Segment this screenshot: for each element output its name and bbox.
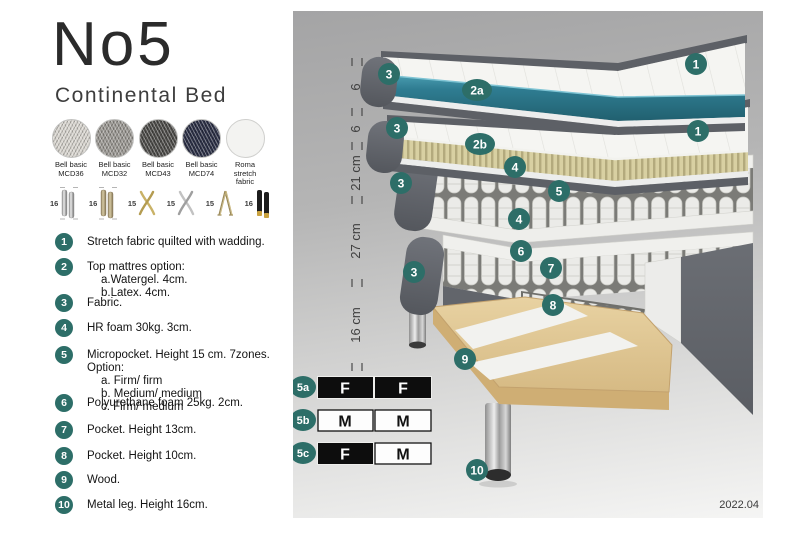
leg-option: 15 [167, 186, 196, 220]
bed-cutaway-diagram: 6 6 21 cm 27 cm 16 cm [293, 11, 763, 518]
list-item-sub-text: a. Firm/ firm [101, 375, 302, 388]
leg-option: 16 [89, 186, 118, 220]
callout-5: 5 [548, 180, 570, 202]
callout-10: 10 [466, 459, 488, 481]
list-item-main-text: Top mattres option: [87, 261, 302, 274]
callout-text: 2b [473, 138, 487, 152]
callout-text: 4 [516, 213, 523, 227]
callout-text: 3 [398, 177, 405, 191]
list-item-text: HR foam 30kg. 3cm. [87, 319, 302, 337]
list-item-7: 7 Pocket. Height 13cm. [55, 421, 302, 439]
list-item-text: Fabric. [87, 294, 302, 312]
ruler-label: 6 [348, 125, 363, 132]
callout-text: 3 [411, 266, 418, 280]
box-outer-fabric-right [681, 243, 753, 415]
callout-text: 3 [386, 68, 393, 82]
bed-diagram-panel: 6 6 21 cm 27 cm 16 cm [293, 11, 763, 518]
list-item-text: Stretch fabric quilted with wadding. [87, 233, 302, 251]
box-base [398, 232, 753, 488]
callout-4: 4 [504, 156, 526, 178]
list-number-badge: 8 [55, 447, 73, 465]
list-item-8: 8 Pocket. Height 10cm. [55, 447, 302, 465]
ruler-label: 16 cm [348, 307, 363, 342]
fabric-swatch-label: Bell basic MCD32 [94, 161, 136, 178]
leg-height-label: 15 [206, 199, 214, 208]
callout-9: 9 [454, 348, 476, 370]
fabric-swatch-image [226, 119, 265, 158]
fabric-swatch: Bell basic MCD74 [181, 119, 223, 187]
callout-2b: 2b [465, 133, 495, 155]
fabric-swatch-label: Bell basic MCD74 [181, 161, 223, 178]
list-item-3: 3 Fabric. [55, 294, 302, 312]
cross-gold-leg-icon [137, 186, 157, 220]
callout-1: 1 [685, 53, 707, 75]
cross-silver-leg-icon [176, 186, 196, 220]
cylinder-brass-leg-icon [98, 186, 118, 220]
firmness-cell-text: F [398, 381, 408, 398]
firmness-cell-text: M [396, 447, 409, 464]
page-title: No5 [52, 14, 175, 76]
leg-option: 15 [128, 186, 157, 220]
callout-text: 4 [512, 161, 519, 175]
firmness-cell-text: F [340, 381, 350, 398]
leg-height-label: 15 [128, 199, 136, 208]
callout-3: 3 [403, 261, 425, 283]
fabric-swatch-label: Roma stretch fabric [224, 161, 266, 187]
list-number-badge: 4 [55, 319, 73, 337]
list-number-badge: 2 [55, 258, 73, 276]
fabric-swatch-row: Bell basic MCD36 Bell basic MCD32 Bell b… [50, 119, 266, 187]
ruler-label: 27 cm [348, 223, 363, 258]
callout-6: 6 [510, 240, 532, 262]
list-item-10: 10 Metal leg. Height 16cm. [55, 496, 302, 514]
list-number-badge: 6 [55, 394, 73, 412]
list-number-badge: 7 [55, 421, 73, 439]
fabric-swatch-image [95, 119, 134, 158]
callout-text: 1 [695, 125, 702, 139]
list-item-text: Pocket. Height 13cm. [87, 421, 302, 439]
leg-height-label: 16 [89, 199, 97, 208]
firmness-cell-text: F [340, 447, 350, 464]
list-item-9: 9 Wood. [55, 471, 302, 489]
firmness-row-label: 5c [297, 448, 309, 460]
callout-text: 9 [462, 353, 469, 367]
callout-text: 2a [470, 84, 484, 98]
list-item-1: 1 Stretch fabric quilted with wadding. [55, 233, 302, 251]
list-number-badge: 9 [55, 471, 73, 489]
front-metal-leg [485, 403, 511, 477]
fabric-swatch: Bell basic MCD32 [94, 119, 136, 187]
rear-leg-foot [409, 342, 426, 349]
list-item-text: Wood. [87, 471, 302, 489]
callout-4: 4 [508, 208, 530, 230]
list-item-4: 4 HR foam 30kg. 3cm. [55, 319, 302, 337]
list-item-text: Polyurethane foam 25kg. 2cm. [87, 394, 302, 412]
leg-options-row: 16 16 15 15 [50, 186, 274, 220]
fabric-swatch-image [52, 119, 91, 158]
callout-3: 3 [378, 63, 400, 85]
leg-option: 16 [50, 186, 79, 220]
list-item-text: Metal leg. Height 16cm. [87, 496, 302, 514]
leg-option: 16 [245, 186, 274, 220]
callout-8: 8 [542, 294, 564, 316]
firmness-cell-text: M [338, 414, 351, 431]
front-leg-foot [485, 469, 511, 481]
firmness-row-label: 5a [297, 382, 310, 394]
callout-text: 8 [550, 299, 557, 313]
leg-height-label: 16 [245, 199, 253, 208]
callout-text: 3 [394, 122, 401, 136]
fabric-swatch: Bell basic MCD43 [137, 119, 179, 187]
firmness-cell-text: M [396, 414, 409, 431]
fabric-swatch-label: Bell basic MCD36 [50, 161, 92, 178]
callout-7: 7 [540, 257, 562, 279]
measurement-labels: 6 6 21 cm 27 cm 16 cm [348, 83, 363, 342]
callout-text: 10 [470, 464, 484, 478]
callout-text: 7 [548, 262, 555, 276]
list-item-text: Pocket. Height 10cm. [87, 447, 302, 465]
leg-option: 15 [206, 186, 235, 220]
leg-shadow [479, 481, 517, 488]
version-label: 2022.04 [719, 499, 759, 511]
cylinder-silver-leg-icon [59, 186, 79, 220]
list-number-badge: 3 [55, 294, 73, 312]
callout-2a: 2a [462, 79, 492, 101]
hairpin-leg-icon [215, 186, 235, 220]
firmness-row-label: 5b [297, 415, 310, 427]
leg-height-label: 15 [167, 199, 175, 208]
list-item-sub-text: a.Watergel. 4cm. [101, 274, 302, 287]
list-number-badge: 5 [55, 346, 73, 364]
product-sheet: No5 Continental Bed Bell basic MCD36 Bel… [0, 0, 800, 533]
cylinder-black-gold-leg-icon [254, 186, 274, 220]
fabric-swatch-image [139, 119, 178, 158]
fabric-swatch: Roma stretch fabric [224, 119, 266, 187]
firmness-table: 5a F F 5b M M 5c F M [293, 376, 432, 465]
fabric-swatch-label: Bell basic MCD43 [137, 161, 179, 178]
callout-text: 6 [518, 245, 525, 259]
ruler-label: 21 cm [348, 155, 363, 190]
leg-height-label: 16 [50, 199, 58, 208]
callout-text: 5 [556, 185, 563, 199]
list-number-badge: 10 [55, 496, 73, 514]
list-number-badge: 1 [55, 233, 73, 251]
fabric-swatch: Bell basic MCD36 [50, 119, 92, 187]
list-item-6: 6 Polyurethane foam 25kg. 2cm. [55, 394, 302, 412]
callout-text: 1 [693, 58, 700, 72]
callout-1: 1 [687, 120, 709, 142]
page-subtitle: Continental Bed [55, 84, 227, 108]
list-item-main-text: Micropocket. Height 15 cm. 7zones. Optio… [87, 349, 302, 375]
fabric-swatch-image [182, 119, 221, 158]
callout-3: 3 [386, 117, 408, 139]
callout-3: 3 [390, 172, 412, 194]
